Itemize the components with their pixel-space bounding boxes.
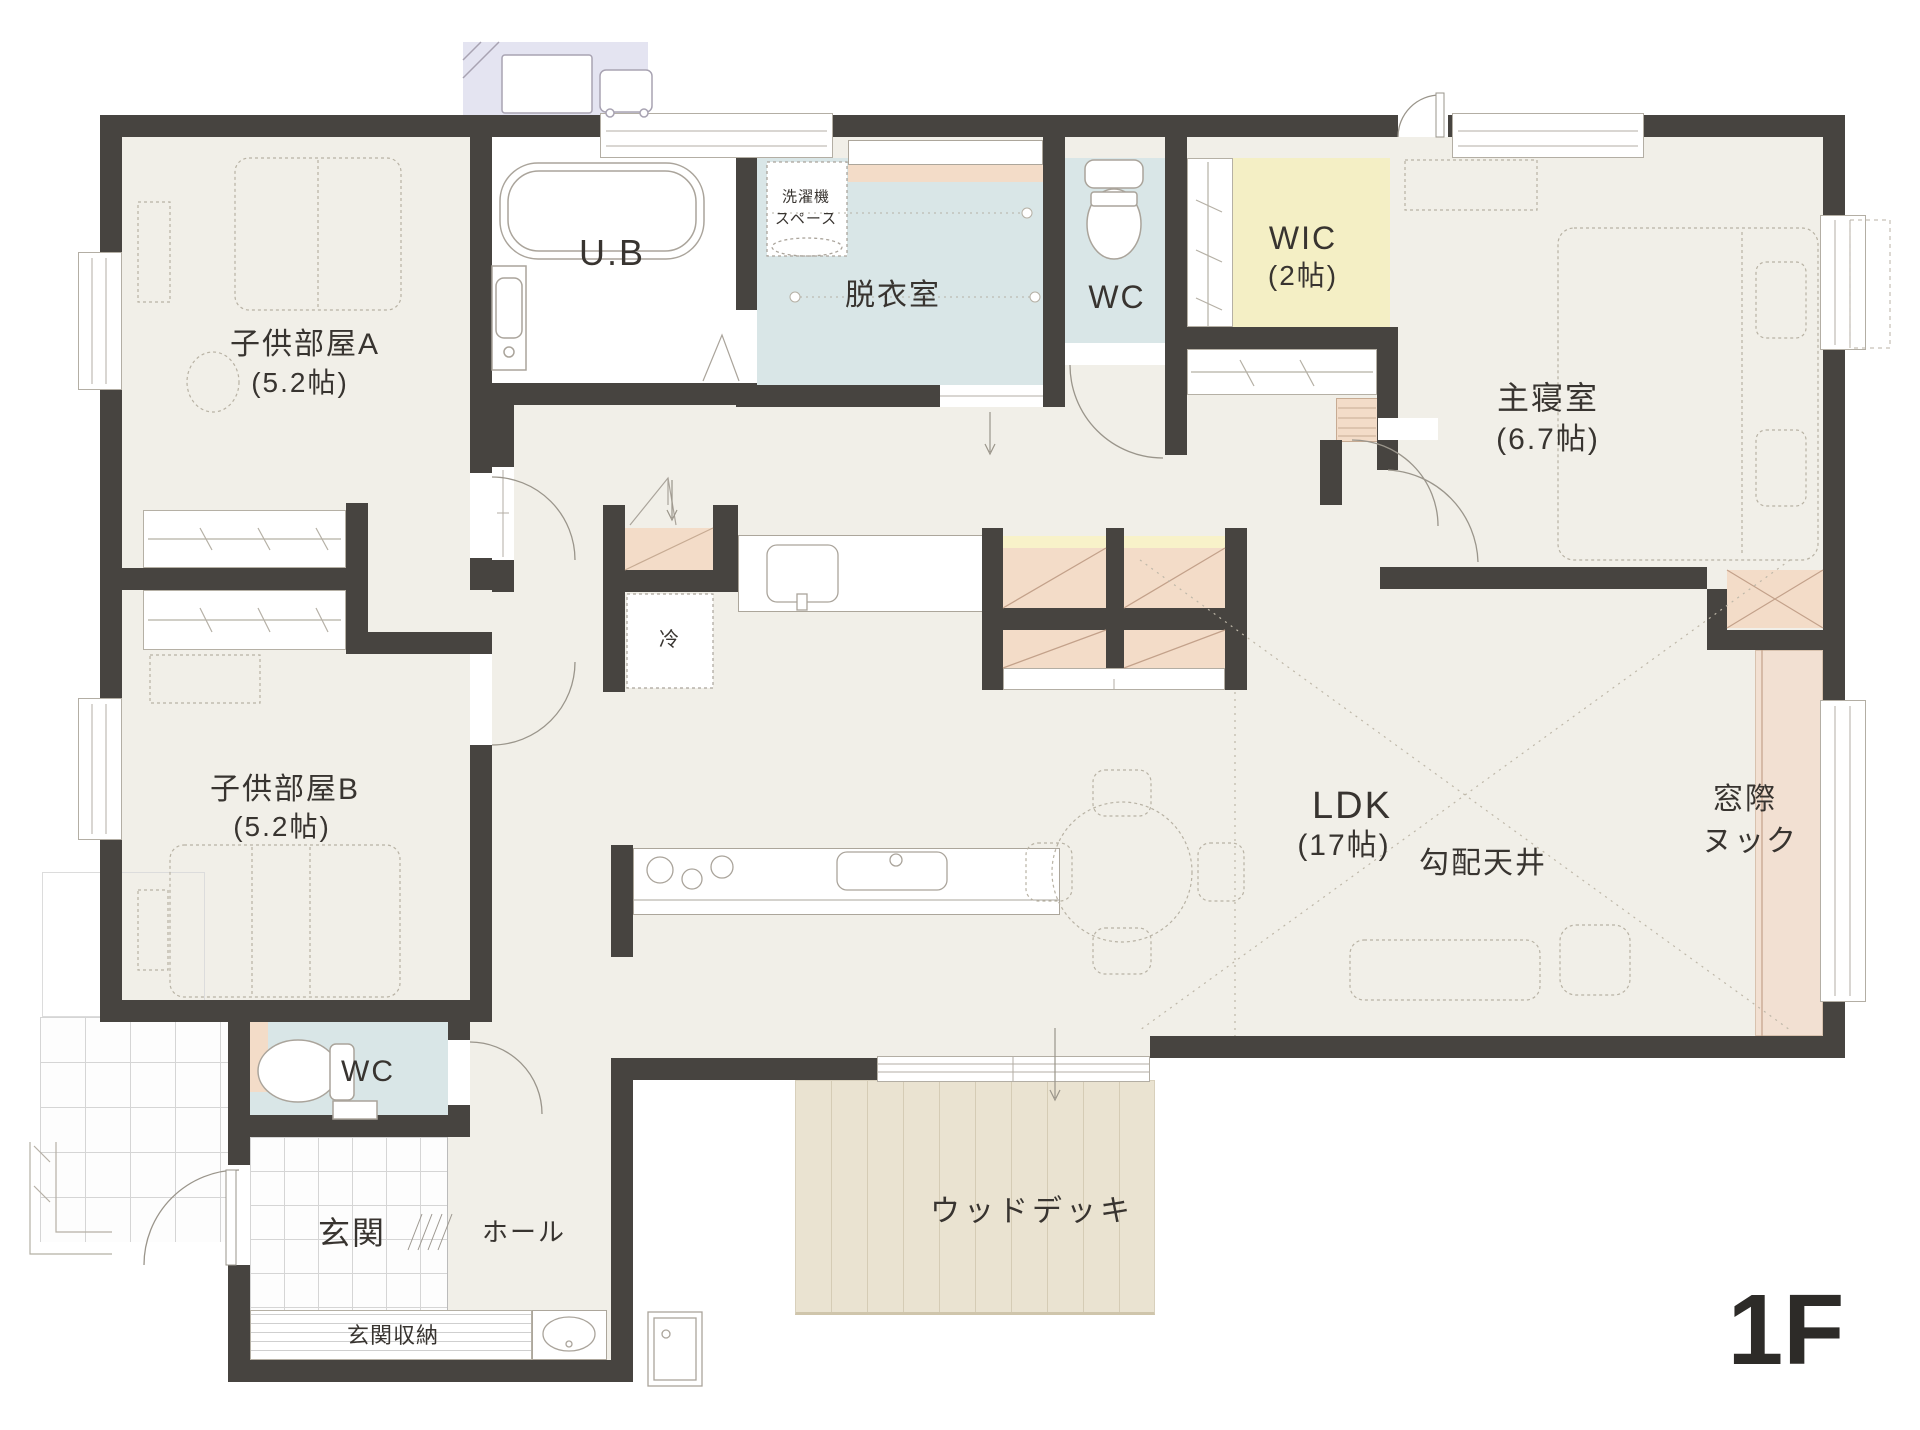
flow-arrows	[667, 412, 1060, 1100]
room-label-kids-b: 子供部屋B	[210, 775, 360, 805]
room-size-wic: (2帖)	[1268, 262, 1338, 290]
room-label-laundry: 脱衣室	[845, 281, 941, 311]
dining-chair	[1093, 928, 1151, 974]
stove-icon	[647, 856, 733, 889]
pillow	[1756, 430, 1806, 506]
fridge-label: 冷	[659, 630, 681, 650]
pillow	[1756, 262, 1806, 338]
storage-diagonals	[1003, 548, 1225, 668]
nook-label-1: 窓際	[1713, 785, 1777, 815]
room-size-kids-a: (5.2帖)	[251, 369, 349, 397]
room-label-kids-a: 子供部屋A	[230, 330, 380, 360]
shoe-storage-label: 玄関収納	[347, 1325, 439, 1347]
room-label-hall: ホール	[482, 1219, 566, 1245]
sloped-ceiling-label: 勾配天井	[1419, 849, 1547, 879]
vanity-icon	[492, 266, 526, 370]
room-label-master: 主寝室	[1497, 382, 1599, 414]
window-sash-lines	[92, 131, 1850, 1082]
chair-kids-a	[187, 352, 239, 412]
entrance-door-leaf	[226, 1170, 236, 1265]
water-heater-icon	[648, 1312, 702, 1386]
kitchen-sink-back-icon	[767, 545, 838, 610]
sloped-ceiling-lines	[1140, 560, 1790, 1036]
step-box-stripes	[1338, 408, 1376, 436]
room-label-bath: U.B	[579, 235, 645, 271]
porch-steps	[30, 1142, 112, 1254]
genkan-step-hatch	[408, 1214, 452, 1250]
floor-plan: 子供部屋A (5.2帖) U.B 洗濯機 スペース 脱衣室 WC WIC (2帖…	[0, 0, 1920, 1430]
dining-table	[1052, 802, 1192, 942]
armchair	[1560, 925, 1630, 995]
dining-chair	[1093, 770, 1151, 816]
sofa	[1350, 940, 1540, 1000]
room-label-wc-bottom: WC	[341, 1057, 395, 1087]
room-size-kids-b: (5.2帖)	[233, 813, 331, 841]
toilet-icon-top	[1085, 160, 1143, 259]
water-heater-unit-icon	[463, 42, 652, 117]
pantry-folding-door	[630, 478, 676, 525]
washer-label-2: スペース	[775, 212, 837, 227]
washer-label-1: 洗濯機	[782, 190, 830, 205]
room-label-ldk: LDK	[1312, 787, 1392, 825]
room-label-wc-top: WC	[1088, 281, 1145, 313]
door-leaf	[1436, 93, 1444, 137]
nook-label-2: ヌック	[1702, 827, 1798, 857]
furniture-dashed	[138, 158, 1818, 1000]
kitchen-sink-icon	[837, 852, 947, 890]
room-size-ldk: (17帖)	[1297, 831, 1390, 861]
floor-number-label: 1F	[1728, 1280, 1845, 1380]
dining-chair	[1198, 843, 1244, 901]
bed-kids-b	[170, 845, 400, 997]
room-label-genkan: 玄関	[318, 1217, 386, 1249]
pantry-diagonal	[625, 528, 713, 570]
dresser-master	[1405, 160, 1537, 210]
basin-icon	[543, 1317, 595, 1351]
folding-door-bath	[703, 335, 739, 381]
desk-kids-b	[138, 890, 168, 970]
room-size-master: (6.7帖)	[1496, 425, 1600, 455]
dresser-kids-b	[150, 655, 260, 703]
desk-kids-a	[138, 202, 170, 302]
dining-chair	[1026, 843, 1072, 901]
exterior-unit-dashed	[1850, 220, 1890, 348]
washing-machine-icon	[767, 162, 847, 256]
room-label-wic: WIC	[1269, 222, 1337, 254]
wood-deck-label: ウッドデッキ	[930, 1197, 1134, 1227]
